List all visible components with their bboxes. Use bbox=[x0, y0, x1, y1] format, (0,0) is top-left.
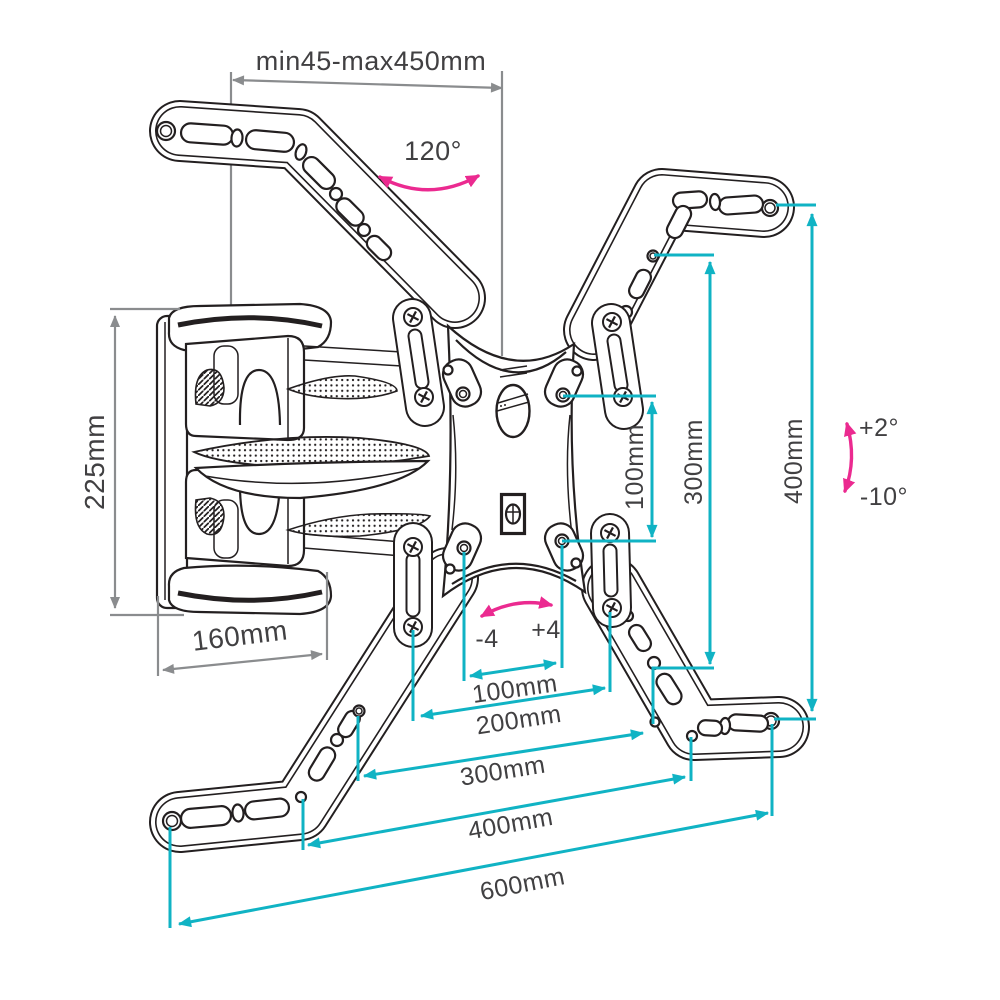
diagram-page: min45-max450mm 120° 225mm 160mm 100mm 30… bbox=[0, 0, 1000, 1000]
screw-icon bbox=[603, 599, 621, 617]
height-300-label: 300mm bbox=[680, 419, 708, 505]
slot-hole bbox=[180, 805, 231, 828]
tilt-arrow-icon bbox=[845, 424, 852, 491]
hatched-pad bbox=[195, 498, 224, 535]
dimension-arrow bbox=[163, 654, 322, 670]
slot-hole bbox=[244, 798, 290, 821]
width-300-label: 300mm bbox=[458, 751, 547, 792]
right-lower-rail bbox=[610, 533, 612, 608]
tilt-up-label: +2° bbox=[859, 414, 899, 442]
mounting-hole bbox=[163, 812, 181, 830]
level-minus-label: -4 bbox=[475, 625, 498, 653]
mounting-hole bbox=[157, 122, 175, 140]
wall-mount-arm-assembly bbox=[157, 304, 430, 614]
height-400-label: 400mm bbox=[780, 418, 808, 504]
dim-extension-range bbox=[233, 80, 502, 88]
swivel-angle-label: 120° bbox=[404, 136, 462, 166]
wall-mount-diagram: min45-max450mm 120° 225mm 160mm 100mm 30… bbox=[0, 0, 1000, 1000]
tilt-down-label: -10° bbox=[860, 483, 908, 511]
slot-hole bbox=[180, 123, 233, 146]
swivel-arrow-icon bbox=[380, 176, 478, 190]
screw-icon bbox=[404, 538, 422, 556]
slot-hole bbox=[728, 714, 769, 732]
screw-icon bbox=[603, 313, 621, 331]
slot-hole bbox=[698, 720, 723, 736]
slot-hole bbox=[672, 191, 707, 209]
mounting-hole bbox=[354, 706, 365, 717]
wall-plate-height-label: 225mm bbox=[79, 414, 110, 510]
screw-icon bbox=[601, 524, 619, 542]
bottom-right-arm bbox=[612, 588, 779, 741]
extension-range-label: min45-max450mm bbox=[256, 46, 487, 76]
dimension-arrow bbox=[233, 80, 502, 88]
width-400-label: 400mm bbox=[466, 803, 555, 845]
wall-plate-bottom-cap bbox=[169, 566, 331, 614]
width-600-label: 600mm bbox=[478, 862, 568, 906]
slot-hole bbox=[718, 195, 763, 215]
level-plus-label: +4 bbox=[531, 616, 561, 644]
vesa-plate bbox=[439, 326, 588, 596]
vesa-vertical-100-label: 100mm bbox=[621, 424, 649, 510]
slot-hole bbox=[245, 129, 294, 152]
hatched-pad bbox=[195, 369, 224, 406]
screw-icon bbox=[404, 308, 422, 326]
center-lock-screw bbox=[502, 495, 525, 534]
screw-icon bbox=[415, 388, 433, 406]
arm-depth-label: 160mm bbox=[190, 614, 289, 656]
tilt-oval-hole bbox=[497, 385, 530, 437]
level-arrow-icon bbox=[482, 603, 551, 616]
wall-plate-column bbox=[157, 316, 187, 608]
